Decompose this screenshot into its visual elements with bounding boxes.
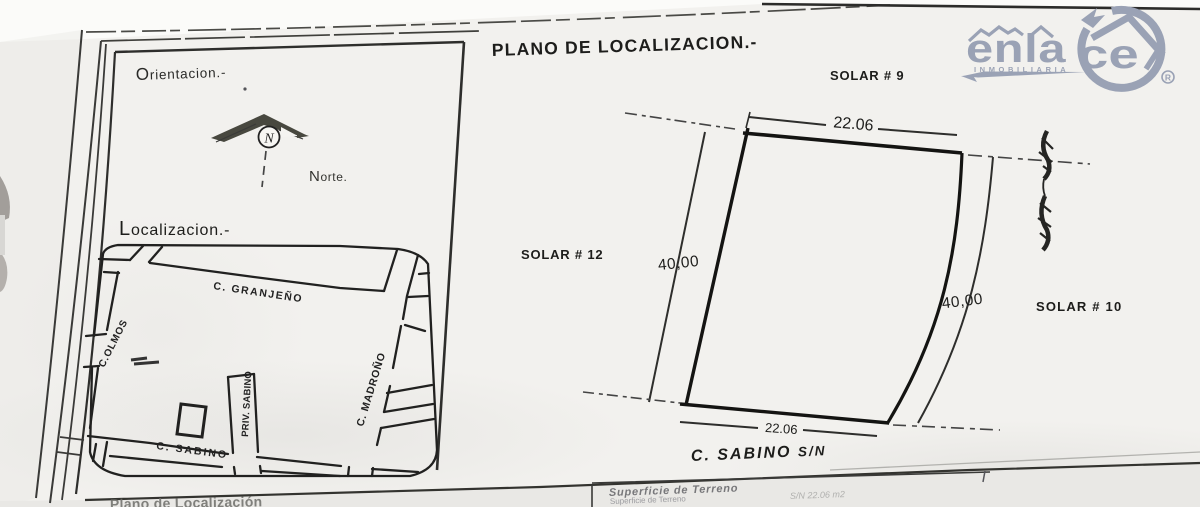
svg-text:Norte.: Norte. — [309, 168, 347, 185]
svg-text:ce: ce — [1078, 31, 1139, 77]
svg-text:Plano de Localización: Plano de Localización — [110, 493, 263, 507]
svg-text:Localizacion.-: Localizacion.- — [119, 218, 230, 240]
svg-text:22.06: 22.06 — [765, 420, 799, 437]
svg-text:SOLAR # 12: SOLAR # 12 — [521, 247, 603, 262]
svg-text:SOLAR # 9: SOLAR # 9 — [830, 68, 904, 83]
svg-text:S/N 22.06 m2: S/N 22.06 m2 — [790, 489, 845, 501]
svg-text:R: R — [1165, 73, 1171, 83]
svg-text:SOLAR # 10: SOLAR # 10 — [1036, 299, 1122, 314]
svg-text:22.06: 22.06 — [833, 114, 874, 134]
svg-text:N: N — [263, 132, 274, 147]
